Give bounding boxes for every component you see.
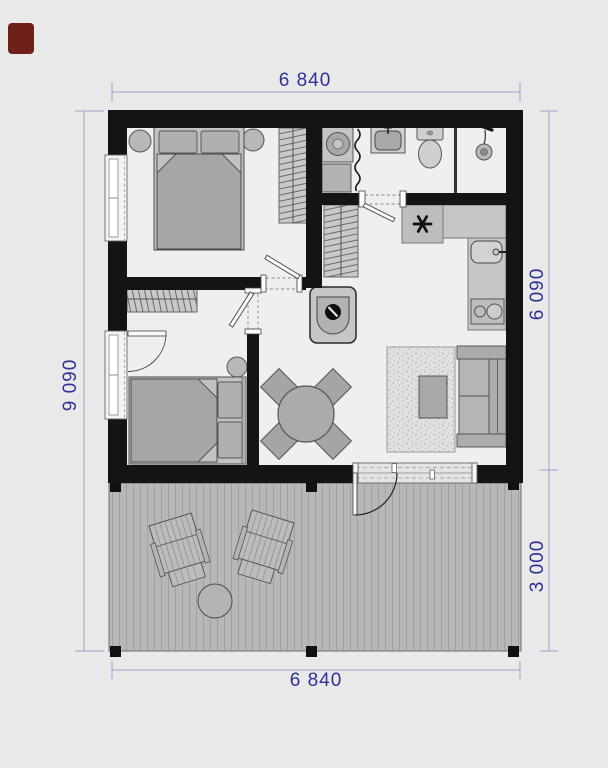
deck-terrace [109, 479, 521, 657]
wall-bath-bottom-left [322, 193, 362, 205]
entrance-door-leaf [353, 473, 357, 515]
pillow [159, 131, 197, 153]
floor-plan-page: 6 840 6 840 9 090 6 090 3 000 [0, 0, 608, 768]
wall-bottom-left [108, 465, 353, 483]
wood-stove [310, 287, 356, 343]
frame-post [472, 463, 477, 483]
wall-center [306, 128, 322, 288]
wall-bedroom-divider [127, 277, 262, 290]
dim-label-bottom: 6 840 [290, 670, 343, 691]
bedside-lamp [129, 130, 151, 152]
two-burner-hob [471, 299, 504, 324]
dim-label-top: 6 840 [279, 70, 332, 91]
bedside-lamp [242, 129, 264, 151]
toilet-bowl [419, 140, 442, 168]
sofa [457, 346, 506, 447]
pillow [201, 131, 239, 153]
sofa-seat [459, 396, 489, 434]
double-bed [129, 377, 246, 464]
sofa-armrest [457, 434, 506, 447]
door-post [400, 191, 406, 207]
duvet [157, 154, 241, 249]
faucet [493, 249, 499, 255]
coffee-table [419, 376, 447, 418]
bath-cabinet [322, 164, 351, 192]
washbasin [371, 126, 405, 153]
wall-bath-bottom-right [403, 193, 506, 205]
deck-post [306, 646, 317, 657]
deck-table [198, 584, 232, 618]
shower-partition [454, 128, 457, 194]
dim-label-right-lower: 3 000 [527, 540, 548, 593]
door-post [245, 329, 261, 334]
house [105, 110, 523, 515]
wall-bottom-right [477, 465, 523, 483]
wardrobe [279, 128, 307, 223]
wall-top [108, 110, 523, 128]
floor-plan-drawing: 6 840 6 840 9 090 6 090 3 000 [0, 0, 608, 768]
headboard [242, 377, 246, 464]
cropped-image-corner [8, 23, 34, 54]
sofa-seat [459, 359, 489, 396]
mullion [392, 464, 397, 473]
door-post [261, 275, 266, 292]
double-bed [154, 126, 244, 250]
window-bedroom-1 [105, 155, 127, 241]
hall-wardrobe [324, 205, 358, 277]
mullion [430, 470, 435, 479]
sofa-armrest [457, 346, 506, 359]
deck-post [508, 646, 519, 657]
duvet [131, 379, 217, 462]
window-leaf [128, 331, 166, 336]
burner [487, 304, 502, 319]
toilet [417, 126, 443, 168]
deck-post [110, 646, 121, 657]
dim-label-right-upper: 6 090 [527, 268, 548, 321]
door-post [245, 288, 261, 293]
dining-table [278, 386, 334, 442]
wall-bedroom2-right [247, 334, 259, 465]
pillow [218, 382, 242, 418]
washing-machine [322, 127, 353, 162]
dim-label-left: 9 090 [60, 359, 81, 412]
wall-right [506, 110, 523, 483]
bedside-lamp [227, 357, 247, 377]
pillow [218, 422, 242, 458]
flush-button [427, 131, 433, 135]
